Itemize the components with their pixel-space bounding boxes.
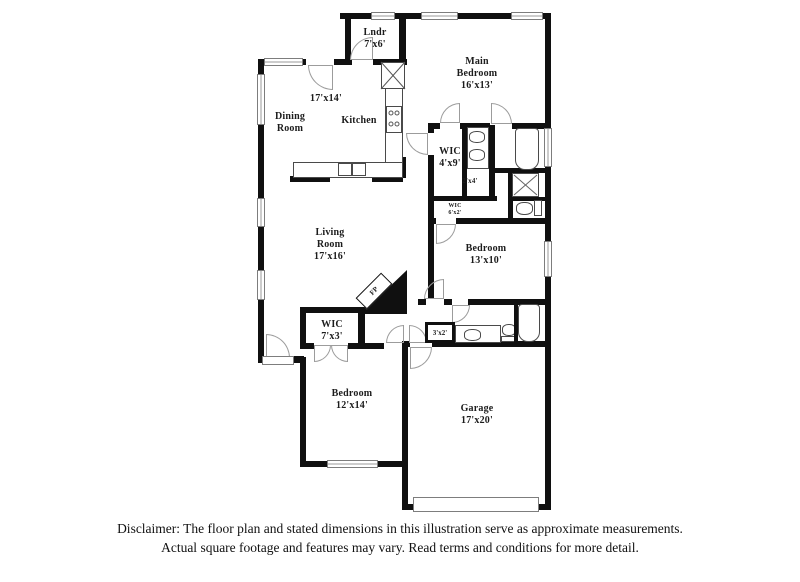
nook-dims: 2'x4' [450, 177, 490, 185]
floor-plan: 3'x2' FP Lndr 7'x6' Main Bedroom 16'x13'… [0, 0, 800, 582]
door-arc [331, 345, 348, 362]
utility-box-cross-icon [381, 62, 405, 89]
window [421, 12, 458, 20]
hall-closet: 3'x2' [425, 322, 455, 343]
room-label-dining: Dining Room [261, 111, 319, 135]
room-label-wic3: WIC 7'x3' [302, 319, 362, 343]
room-label-wic-small: WIC 6'x2' [435, 203, 475, 216]
window [257, 198, 265, 227]
wic-small-name: WIC [435, 203, 475, 210]
wall [514, 304, 518, 342]
room-label-bedroom3: Bedroom 12'x14' [302, 388, 402, 412]
toilet-tank-icon [534, 200, 542, 216]
door-arc [452, 305, 470, 323]
main-bedroom-dims: 16'x13' [449, 80, 505, 92]
dining-name: Dining Room [261, 111, 319, 135]
door-arc [436, 224, 456, 244]
door-arc [491, 103, 512, 124]
bedroom3-dims: 12'x14' [302, 400, 402, 412]
window [257, 270, 265, 300]
toilet-icon [516, 202, 533, 215]
bathtub-icon [518, 304, 540, 342]
garage-dims: 17'x20' [427, 415, 527, 427]
wic-main-name: WIC [420, 146, 480, 158]
room-label-wic-main: WIC 4'x9' [420, 146, 480, 170]
wall [428, 155, 434, 299]
room-label-bedroom2: Bedroom 13'x10' [436, 243, 536, 267]
wall [428, 196, 497, 201]
main-bedroom-name: Main Bedroom [449, 56, 505, 80]
door-arc [386, 325, 404, 343]
living-name: Living Room [302, 227, 358, 251]
wall [508, 197, 551, 201]
sink-icon [469, 131, 485, 143]
wall [348, 343, 362, 349]
living-dims: 17'x16' [302, 251, 358, 263]
bathtub-icon [515, 128, 539, 170]
wall [300, 343, 314, 349]
kitchen-name: Kitchen [319, 115, 399, 127]
kitchen-sink-icon [338, 163, 352, 176]
wall [362, 343, 384, 349]
door-arc [424, 279, 444, 299]
wic3-name: WIC [302, 319, 362, 331]
dining-kitchen-dims: 17'x14' [286, 93, 366, 105]
window [544, 128, 552, 167]
shower-glass-icon [512, 173, 539, 197]
window [371, 12, 395, 20]
room-label-laundry: Lndr 7'x6' [345, 27, 405, 51]
garage-door [413, 497, 539, 512]
disclaimer-line1: Disclaimer: The floor plan and stated di… [0, 520, 800, 539]
wall [428, 123, 434, 133]
sink-icon [464, 329, 481, 341]
wall [489, 125, 495, 172]
room-label-garage: Garage 17'x20' [427, 403, 527, 427]
laundry-name: Lndr [345, 27, 405, 39]
wall [428, 218, 436, 224]
disclaimer-line2: Actual square footage and features may v… [0, 539, 800, 558]
wall [300, 307, 366, 313]
nook-dims-label: 2'x4' [450, 177, 490, 185]
window [264, 58, 303, 66]
window [327, 460, 378, 468]
disclaimer-text: Disclaimer: The floor plan and stated di… [0, 520, 800, 557]
hall-closet-dims: 3'x2' [433, 329, 447, 337]
door-arc [266, 334, 290, 358]
entry-door-sill [262, 356, 294, 365]
wall [402, 343, 408, 510]
wall [444, 299, 452, 305]
door-arc [440, 103, 460, 123]
bedroom3-name: Bedroom [302, 388, 402, 400]
wic3-dims: 7'x3' [302, 331, 362, 343]
window [544, 241, 552, 277]
bedroom2-dims: 13'x10' [436, 255, 536, 267]
door-arc [410, 347, 432, 369]
room-label-living: Living Room 17'x16' [302, 227, 358, 263]
door-arc [308, 65, 333, 90]
kitchen-sink-icon [352, 163, 366, 176]
bedroom2-name: Bedroom [436, 243, 536, 255]
dining-kitchen-dims-label: 17'x14' [286, 93, 366, 105]
room-label-main-bedroom: Main Bedroom 16'x13' [449, 56, 505, 92]
wic-main-dims: 4'x9' [420, 158, 480, 170]
wall [418, 299, 426, 305]
wic-small-dims: 6'x2' [435, 210, 475, 217]
room-label-kitchen: Kitchen [319, 115, 399, 127]
wall [456, 218, 551, 224]
fireplace-label: FP [368, 285, 380, 297]
wall [300, 357, 306, 467]
laundry-dims: 7'x6' [345, 39, 405, 51]
door-arc [314, 345, 331, 362]
window [511, 12, 543, 20]
garage-name: Garage [427, 403, 527, 415]
